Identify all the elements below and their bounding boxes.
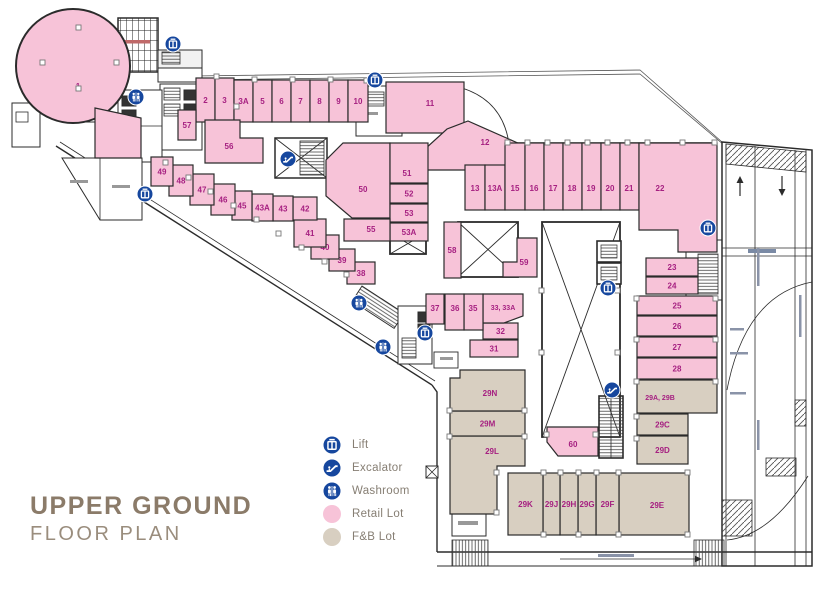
lot-label-23: 23 — [668, 263, 677, 272]
lot-label-9: 9 — [336, 97, 341, 106]
lot-label-43A: 43A — [255, 204, 270, 213]
title-block: UPPER GROUND FLOOR PLAN — [30, 492, 252, 546]
lot-29N: 29N — [450, 370, 525, 411]
lot-label-58: 58 — [448, 246, 457, 255]
lot-label-15: 15 — [511, 184, 520, 193]
lot-2: 2 — [196, 78, 215, 122]
lot-label-25: 25 — [673, 302, 682, 311]
legend-item-lift: Lift — [322, 433, 410, 456]
lift-icon — [600, 280, 616, 296]
lot-label-50: 50 — [359, 185, 368, 194]
lot-label-43: 43 — [279, 205, 288, 214]
lot-label-29C: 29C — [655, 421, 670, 430]
lot-label-21: 21 — [625, 184, 634, 193]
lot-32: 32 — [483, 323, 518, 339]
escalator-icon — [280, 151, 296, 167]
lot-label-36: 36 — [451, 304, 460, 313]
lot-3: 3 — [215, 78, 234, 122]
lot-label-26: 26 — [673, 322, 682, 331]
lot-5: 5 — [253, 80, 272, 122]
lot-label-13: 13 — [471, 184, 480, 193]
lift-icon — [700, 220, 716, 236]
lot-label-6: 6 — [279, 97, 284, 106]
lot-41: 41 — [294, 219, 326, 247]
lot-label-42: 42 — [301, 205, 310, 214]
lift-icon — [322, 435, 342, 455]
lot-28: 28 — [637, 358, 717, 379]
lot-43: 43 — [273, 196, 293, 221]
lot-label-32: 32 — [496, 327, 505, 336]
lot-8: 8 — [310, 80, 329, 122]
lot-20: 20 — [601, 143, 620, 210]
lift-icon — [165, 36, 181, 52]
lot-label-27: 27 — [673, 343, 682, 352]
lift-icon — [417, 325, 433, 341]
lot-label-29L: 29L — [485, 447, 499, 456]
lot-13A: 13A — [485, 165, 505, 210]
lot-label-10: 10 — [354, 97, 363, 106]
washroom-icon — [322, 481, 342, 501]
lot-26: 26 — [637, 316, 717, 336]
legend-label: F&B Lot — [352, 531, 396, 543]
lot-9: 9 — [329, 80, 348, 122]
lot-label-33, 33A: 33, 33A — [491, 305, 516, 312]
lot-6: 6 — [272, 80, 291, 122]
lot-52: 52 — [390, 184, 428, 203]
lot-46: 46 — [211, 184, 235, 215]
lot-31: 31 — [470, 340, 518, 357]
lot-29G: 29G — [578, 473, 596, 535]
lot-53A: 53A — [390, 223, 428, 241]
lot-25: 25 — [637, 296, 717, 315]
lot-label-59: 59 — [520, 258, 529, 267]
lot-label-29H: 29H — [562, 500, 577, 509]
lot-10: 10 — [348, 80, 368, 122]
lot-33, 33A: 33, 33A — [483, 294, 523, 323]
lot-label-41: 41 — [306, 229, 315, 238]
escalator-icon — [322, 458, 342, 478]
lot-label-29J: 29J — [545, 500, 558, 509]
lot-29E: 29E — [619, 473, 689, 535]
lot-label-29M: 29M — [480, 420, 496, 429]
lot-label-19: 19 — [587, 184, 596, 193]
lot-label-3: 3 — [222, 96, 227, 105]
lot-29F: 29F — [596, 473, 619, 535]
lot-3A: 3A — [234, 80, 253, 122]
fnb-swatch — [322, 527, 342, 547]
lot-53: 53 — [390, 204, 428, 222]
legend-label: Lift — [352, 439, 369, 451]
floor-plan-page: 1233A567891011121313A1516171819202122232… — [0, 0, 820, 598]
lot-label-55: 55 — [367, 225, 376, 234]
lot-29J: 29J — [543, 473, 560, 535]
lot-label-3A: 3A — [238, 97, 248, 106]
lot-label-53: 53 — [405, 209, 414, 218]
legend-item-retail: Retail Lot — [322, 502, 410, 525]
lot-label-13A: 13A — [488, 184, 503, 193]
lot-label-49: 49 — [158, 168, 167, 177]
legend-label: Washroom — [352, 485, 410, 497]
lot-label-46: 46 — [219, 196, 228, 205]
lot-label-60: 60 — [569, 440, 578, 449]
lot-label-24: 24 — [668, 282, 677, 291]
lot-label-57: 57 — [183, 121, 192, 130]
lot-51: 51 — [390, 143, 428, 183]
lot-23: 23 — [646, 258, 698, 276]
lot-label-7: 7 — [298, 97, 303, 106]
lot-label-5: 5 — [260, 97, 265, 106]
lot-55: 55 — [344, 219, 390, 241]
lot-label-18: 18 — [568, 184, 577, 193]
lot-label-51: 51 — [403, 169, 412, 178]
legend-label: Retail Lot — [352, 508, 404, 520]
lot-label-47: 47 — [198, 186, 207, 195]
lot-label-20: 20 — [606, 184, 615, 193]
lot-label-56: 56 — [225, 142, 234, 151]
legend-item-escalator: Excalator — [322, 456, 410, 479]
lot-29D: 29D — [637, 436, 688, 464]
lot-label-22: 22 — [656, 184, 665, 193]
legend-item-fnb: F&B Lot — [322, 525, 410, 548]
washroom-icon — [375, 339, 391, 355]
lot-label-52: 52 — [405, 190, 414, 199]
lot-label-8: 8 — [317, 97, 322, 106]
lot-57: 57 — [178, 110, 196, 140]
legend: LiftExcalatorWashroomRetail LotF&B Lot — [322, 433, 410, 548]
lot-29M: 29M — [450, 411, 525, 436]
lot-label-2: 2 — [203, 96, 208, 105]
lot-7: 7 — [291, 80, 310, 122]
washroom-icon — [128, 89, 144, 105]
lot-label-35: 35 — [469, 304, 478, 313]
lot-17: 17 — [544, 143, 563, 210]
lot-58: 58 — [444, 222, 461, 278]
retail-swatch — [322, 504, 342, 524]
lot-11: 11 — [386, 82, 464, 133]
lot-49: 49 — [151, 157, 173, 186]
lot-label-53A: 53A — [402, 228, 417, 237]
lot-label-29N: 29N — [483, 389, 498, 398]
lift-icon — [137, 186, 153, 202]
lot-label-16: 16 — [530, 184, 539, 193]
lot-label-29D: 29D — [655, 446, 670, 455]
plan-title: UPPER GROUND — [30, 492, 252, 521]
legend-label: Excalator — [352, 462, 403, 474]
lot-label-29A, 29B: 29A, 29B — [645, 395, 675, 402]
lot-24: 24 — [646, 277, 698, 294]
lot-label-12: 12 — [481, 138, 490, 147]
lot-29A, 29B: 29A, 29B — [637, 380, 717, 413]
lot-label-31: 31 — [490, 345, 499, 354]
lot-21: 21 — [620, 143, 639, 210]
lot-29C: 29C — [637, 414, 688, 435]
washroom-icon — [351, 295, 367, 311]
lot-label-29G: 29G — [579, 500, 594, 509]
plan-subtitle: FLOOR PLAN — [30, 523, 252, 546]
lot-60: 60 — [547, 427, 598, 456]
lot-27: 27 — [637, 337, 717, 357]
lot-50: 50 — [326, 143, 390, 218]
lot-13: 13 — [465, 165, 485, 210]
lot-label-48: 48 — [177, 177, 186, 186]
lot-56: 56 — [205, 120, 263, 163]
lot-label-29F: 29F — [601, 500, 615, 509]
lot-label-38: 38 — [357, 269, 366, 278]
lot-label-11: 11 — [426, 99, 435, 108]
lot-1: 1 — [16, 9, 130, 123]
lot-18: 18 — [563, 143, 582, 210]
lot-label-28: 28 — [673, 365, 682, 374]
lot-36: 36 — [445, 294, 464, 330]
lot-37: 37 — [426, 294, 444, 324]
lot-29H: 29H — [560, 473, 578, 535]
lot-15: 15 — [505, 143, 525, 210]
legend-item-washroom: Washroom — [322, 479, 410, 502]
lot-label-29K: 29K — [518, 500, 533, 509]
lot-label-37: 37 — [431, 304, 440, 313]
escalator-icon — [604, 382, 620, 398]
lot-label-29E: 29E — [650, 501, 665, 510]
lot-label-45: 45 — [238, 202, 247, 211]
lot-35: 35 — [464, 294, 483, 330]
lot-19: 19 — [582, 143, 601, 210]
lot-label-17: 17 — [549, 184, 558, 193]
lift-icon — [367, 72, 383, 88]
lot-29K: 29K — [508, 473, 543, 535]
lot-42: 42 — [293, 197, 317, 220]
lot-16: 16 — [525, 143, 544, 210]
